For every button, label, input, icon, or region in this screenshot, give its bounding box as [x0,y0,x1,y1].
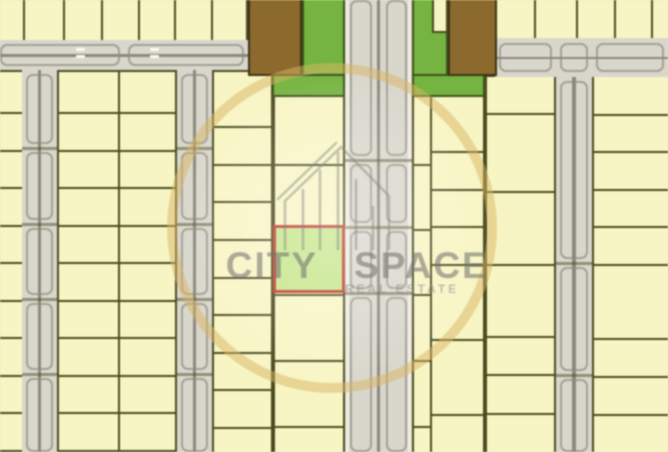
brand-text-city: CITY [222,247,318,284]
watermark-layer [0,0,668,452]
watermark-ring-icon [172,68,492,388]
brand-text-space: SPACE [354,247,489,284]
plot-map-canvas: CITY SPACE REAL ESTATE [0,0,668,452]
house-icon [278,143,389,249]
brand-tagline-text: REAL ESTATE [343,283,461,295]
